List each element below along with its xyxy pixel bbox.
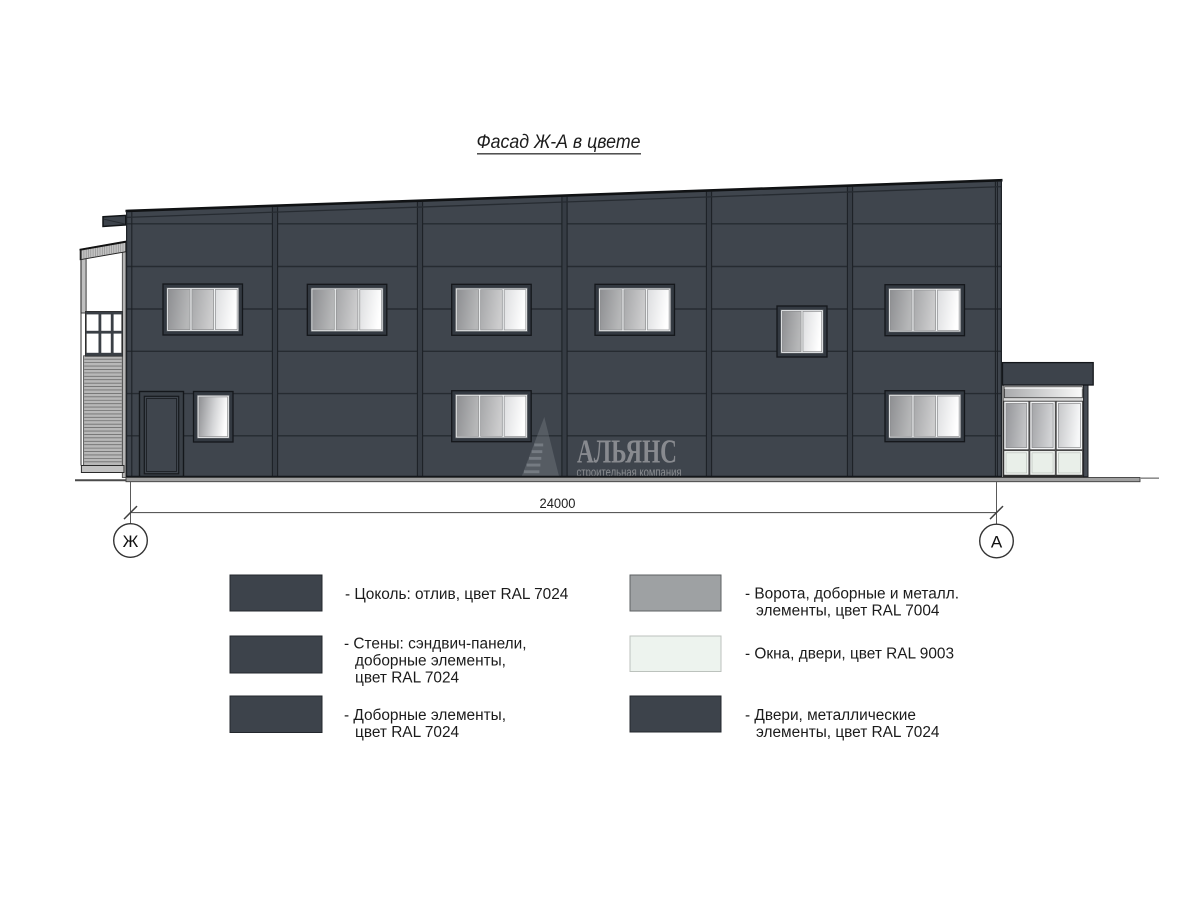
svg-text:элементы, цвет RAL 7004: элементы, цвет RAL 7004 bbox=[756, 603, 940, 620]
svg-text:цвет RAL 7024: цвет RAL 7024 bbox=[355, 670, 460, 687]
svg-text:- Стены: сэндвич-панели,: - Стены: сэндвич-панели, bbox=[344, 636, 526, 653]
svg-text:цвет RAL 7024: цвет RAL 7024 bbox=[355, 724, 460, 741]
svg-text:Ж: Ж bbox=[123, 532, 139, 551]
svg-text:элементы, цвет RAL 7024: элементы, цвет RAL 7024 bbox=[756, 724, 940, 741]
svg-text:доборные элементы,: доборные элементы, bbox=[355, 653, 506, 670]
svg-text:Фасад Ж-А в цвете: Фасад Ж-А в цвете bbox=[477, 131, 641, 153]
svg-text:- Ворота, доборные и металл.: - Ворота, доборные и металл. bbox=[745, 586, 959, 603]
svg-text:- Окна, двери, цвет RAL 9003: - Окна, двери, цвет RAL 9003 bbox=[745, 646, 954, 663]
svg-text:- Двери, металлические: - Двери, металлические bbox=[745, 707, 916, 724]
svg-text:24000: 24000 bbox=[540, 496, 576, 511]
svg-text:- Цоколь: отлив, цвет RAL 7024: - Цоколь: отлив, цвет RAL 7024 bbox=[345, 586, 569, 603]
svg-text:- Доборные элементы,: - Доборные элементы, bbox=[344, 707, 506, 724]
svg-text:А: А bbox=[991, 533, 1003, 552]
